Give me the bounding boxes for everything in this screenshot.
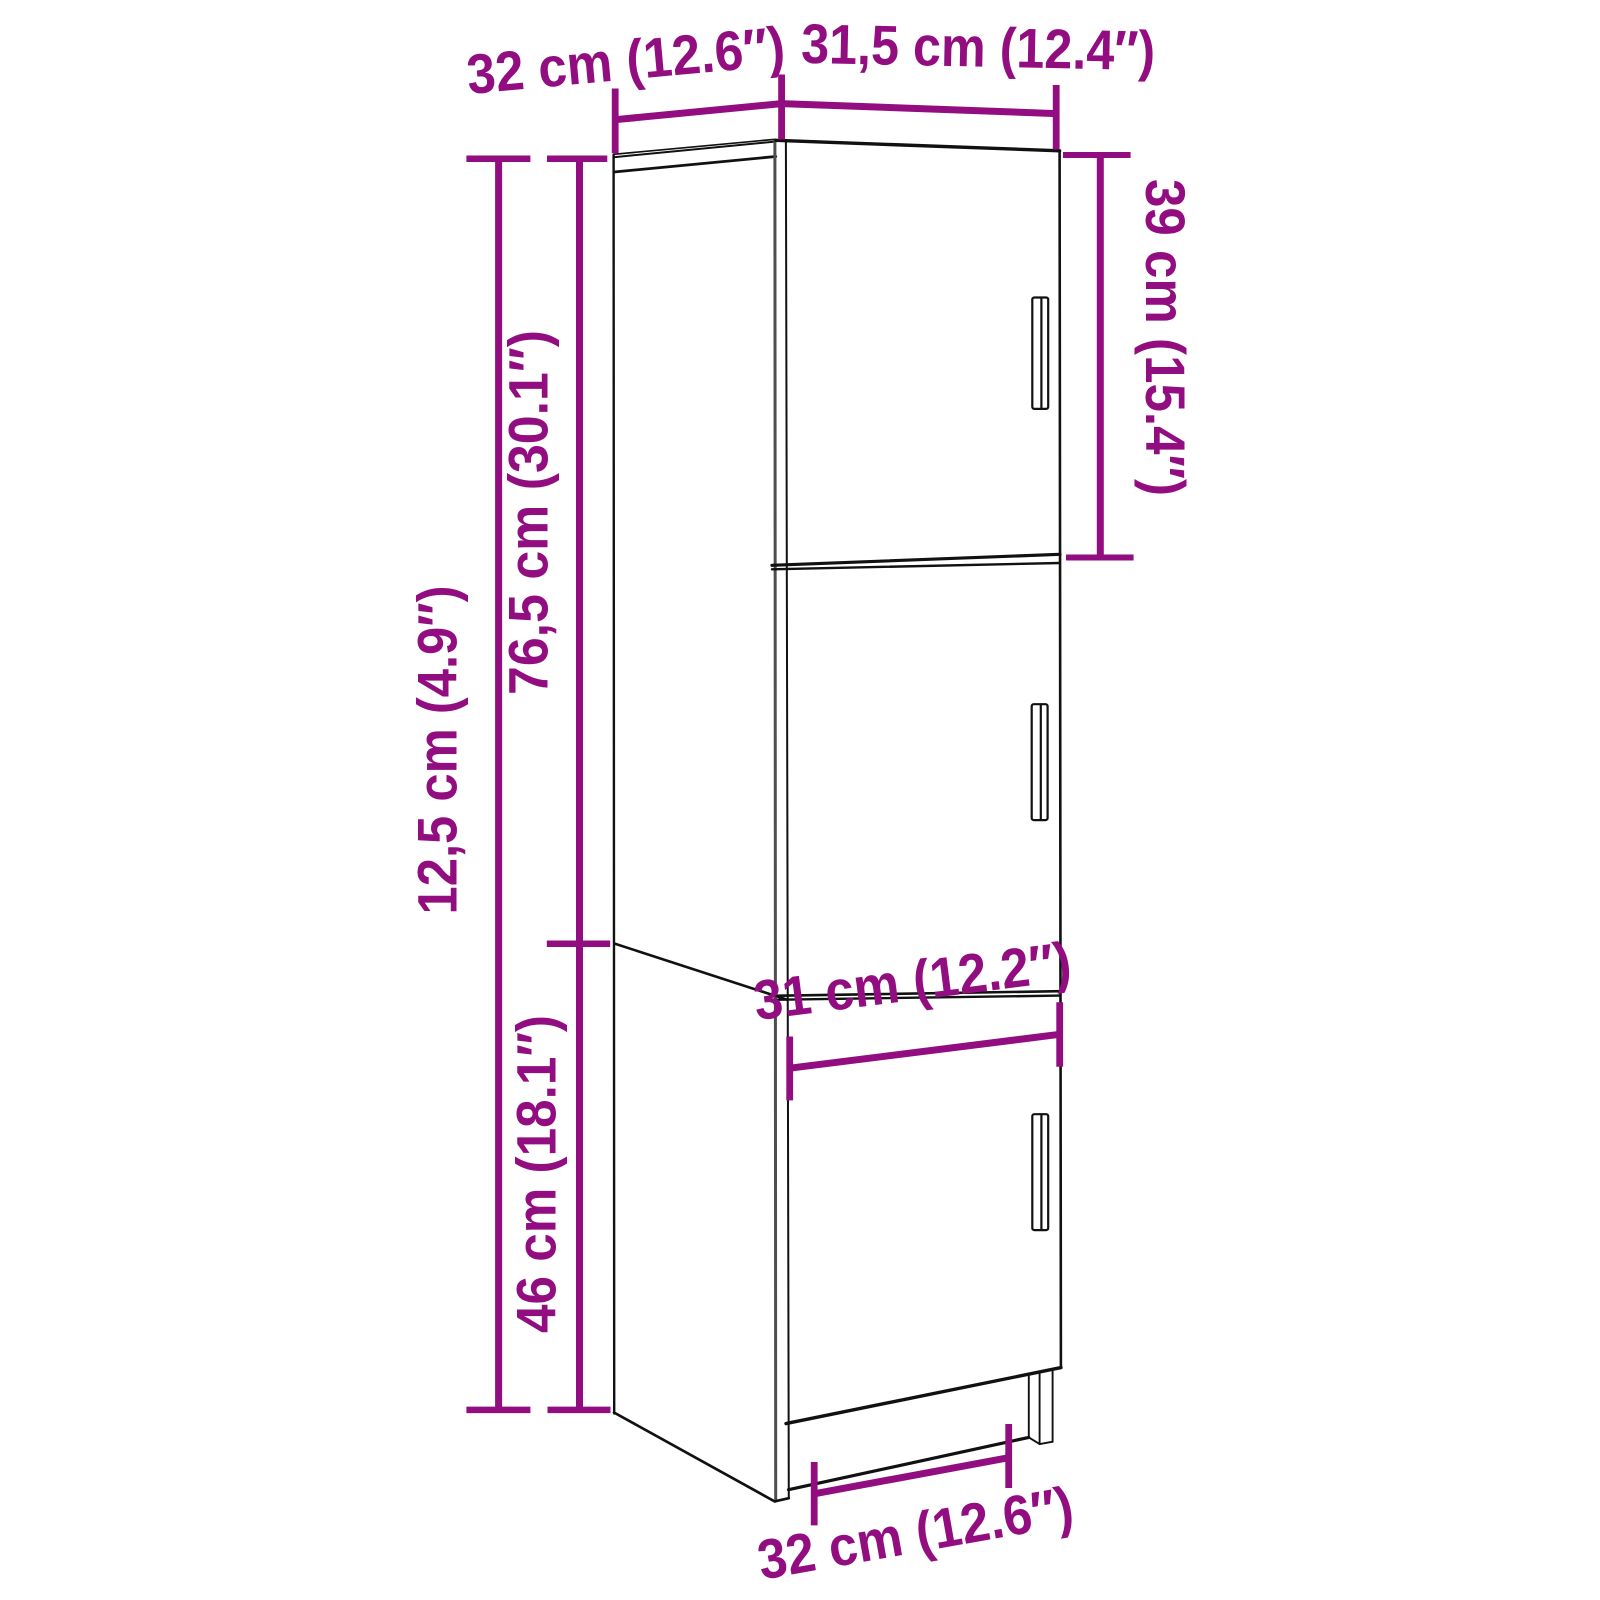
svg-text:12,5 cm (4.9″): 12,5 cm (4.9″)	[406, 586, 469, 915]
svg-text:76,5 cm (30.1″): 76,5 cm (30.1″)	[497, 330, 560, 695]
svg-text:31,5 cm (12.4″): 31,5 cm (12.4″)	[801, 12, 1156, 82]
svg-text:46 cm (18.1″): 46 cm (18.1″)	[505, 1015, 568, 1333]
svg-text:39 cm (15.4″): 39 cm (15.4″)	[1134, 179, 1197, 496]
